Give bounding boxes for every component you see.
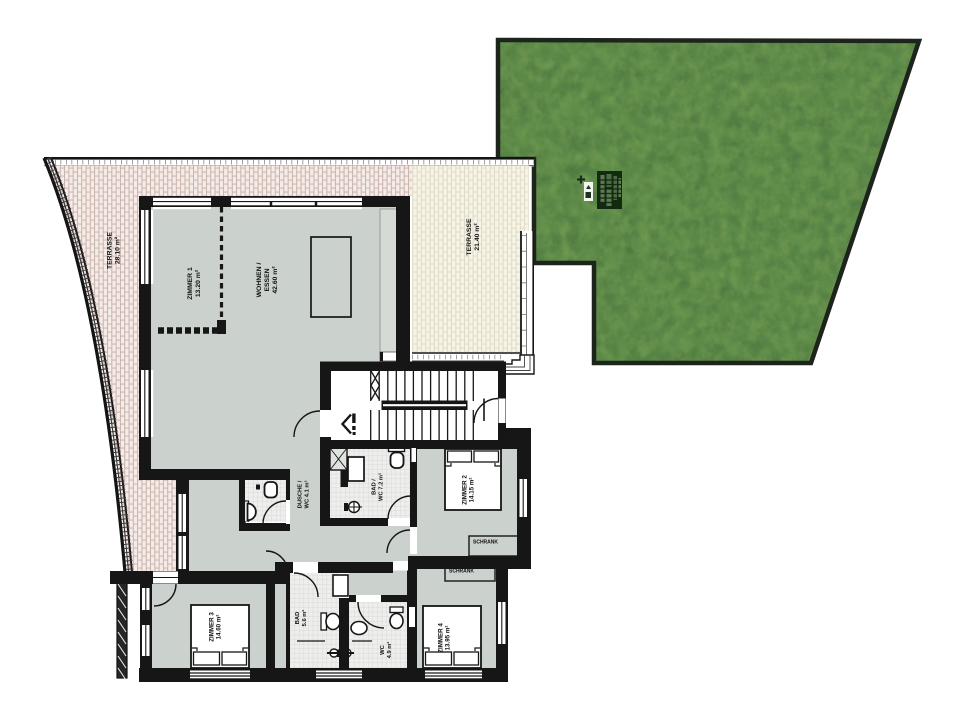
svg-text:DUSCHE /: DUSCHE / bbox=[297, 480, 303, 508]
svg-text:WC 7.2 m²: WC 7.2 m² bbox=[378, 473, 385, 501]
svg-text:BAD /: BAD / bbox=[371, 479, 377, 495]
svg-text:14.60 m²: 14.60 m² bbox=[216, 615, 223, 640]
svg-text:21.40 m²: 21.40 m² bbox=[474, 223, 481, 251]
svg-text:BAD: BAD bbox=[295, 612, 301, 625]
svg-text:SCHRANK: SCHRANK bbox=[449, 569, 474, 575]
svg-text:ZIMMER 3: ZIMMER 3 bbox=[208, 612, 215, 642]
svg-text:WC 4.1 m²: WC 4.1 m² bbox=[304, 480, 311, 508]
svg-text:SCHRANK: SCHRANK bbox=[473, 540, 498, 546]
svg-text:TERRASSE: TERRASSE bbox=[107, 232, 114, 269]
svg-text:ESSEN: ESSEN bbox=[264, 268, 271, 291]
svg-text:ZIMMER 4: ZIMMER 4 bbox=[437, 623, 444, 653]
svg-text:WC: WC bbox=[380, 644, 386, 654]
svg-text:28.10 m²: 28.10 m² bbox=[115, 236, 122, 264]
svg-text:13.95 m²: 13.95 m² bbox=[445, 626, 452, 651]
svg-text:ZIMMER 2: ZIMMER 2 bbox=[461, 475, 468, 505]
svg-text:14.15 m²: 14.15 m² bbox=[469, 478, 476, 503]
svg-text:WOHNEN /: WOHNEN / bbox=[256, 263, 263, 298]
svg-text:13.20 m²: 13.20 m² bbox=[195, 269, 202, 297]
svg-text:42.60 m²: 42.60 m² bbox=[272, 266, 279, 294]
svg-text:4.9 m²: 4.9 m² bbox=[386, 642, 393, 659]
svg-text:ZIMMER 1: ZIMMER 1 bbox=[187, 267, 194, 300]
svg-text:TERRASSE: TERRASSE bbox=[466, 218, 473, 255]
svg-text:5.6 m²: 5.6 m² bbox=[301, 610, 308, 627]
